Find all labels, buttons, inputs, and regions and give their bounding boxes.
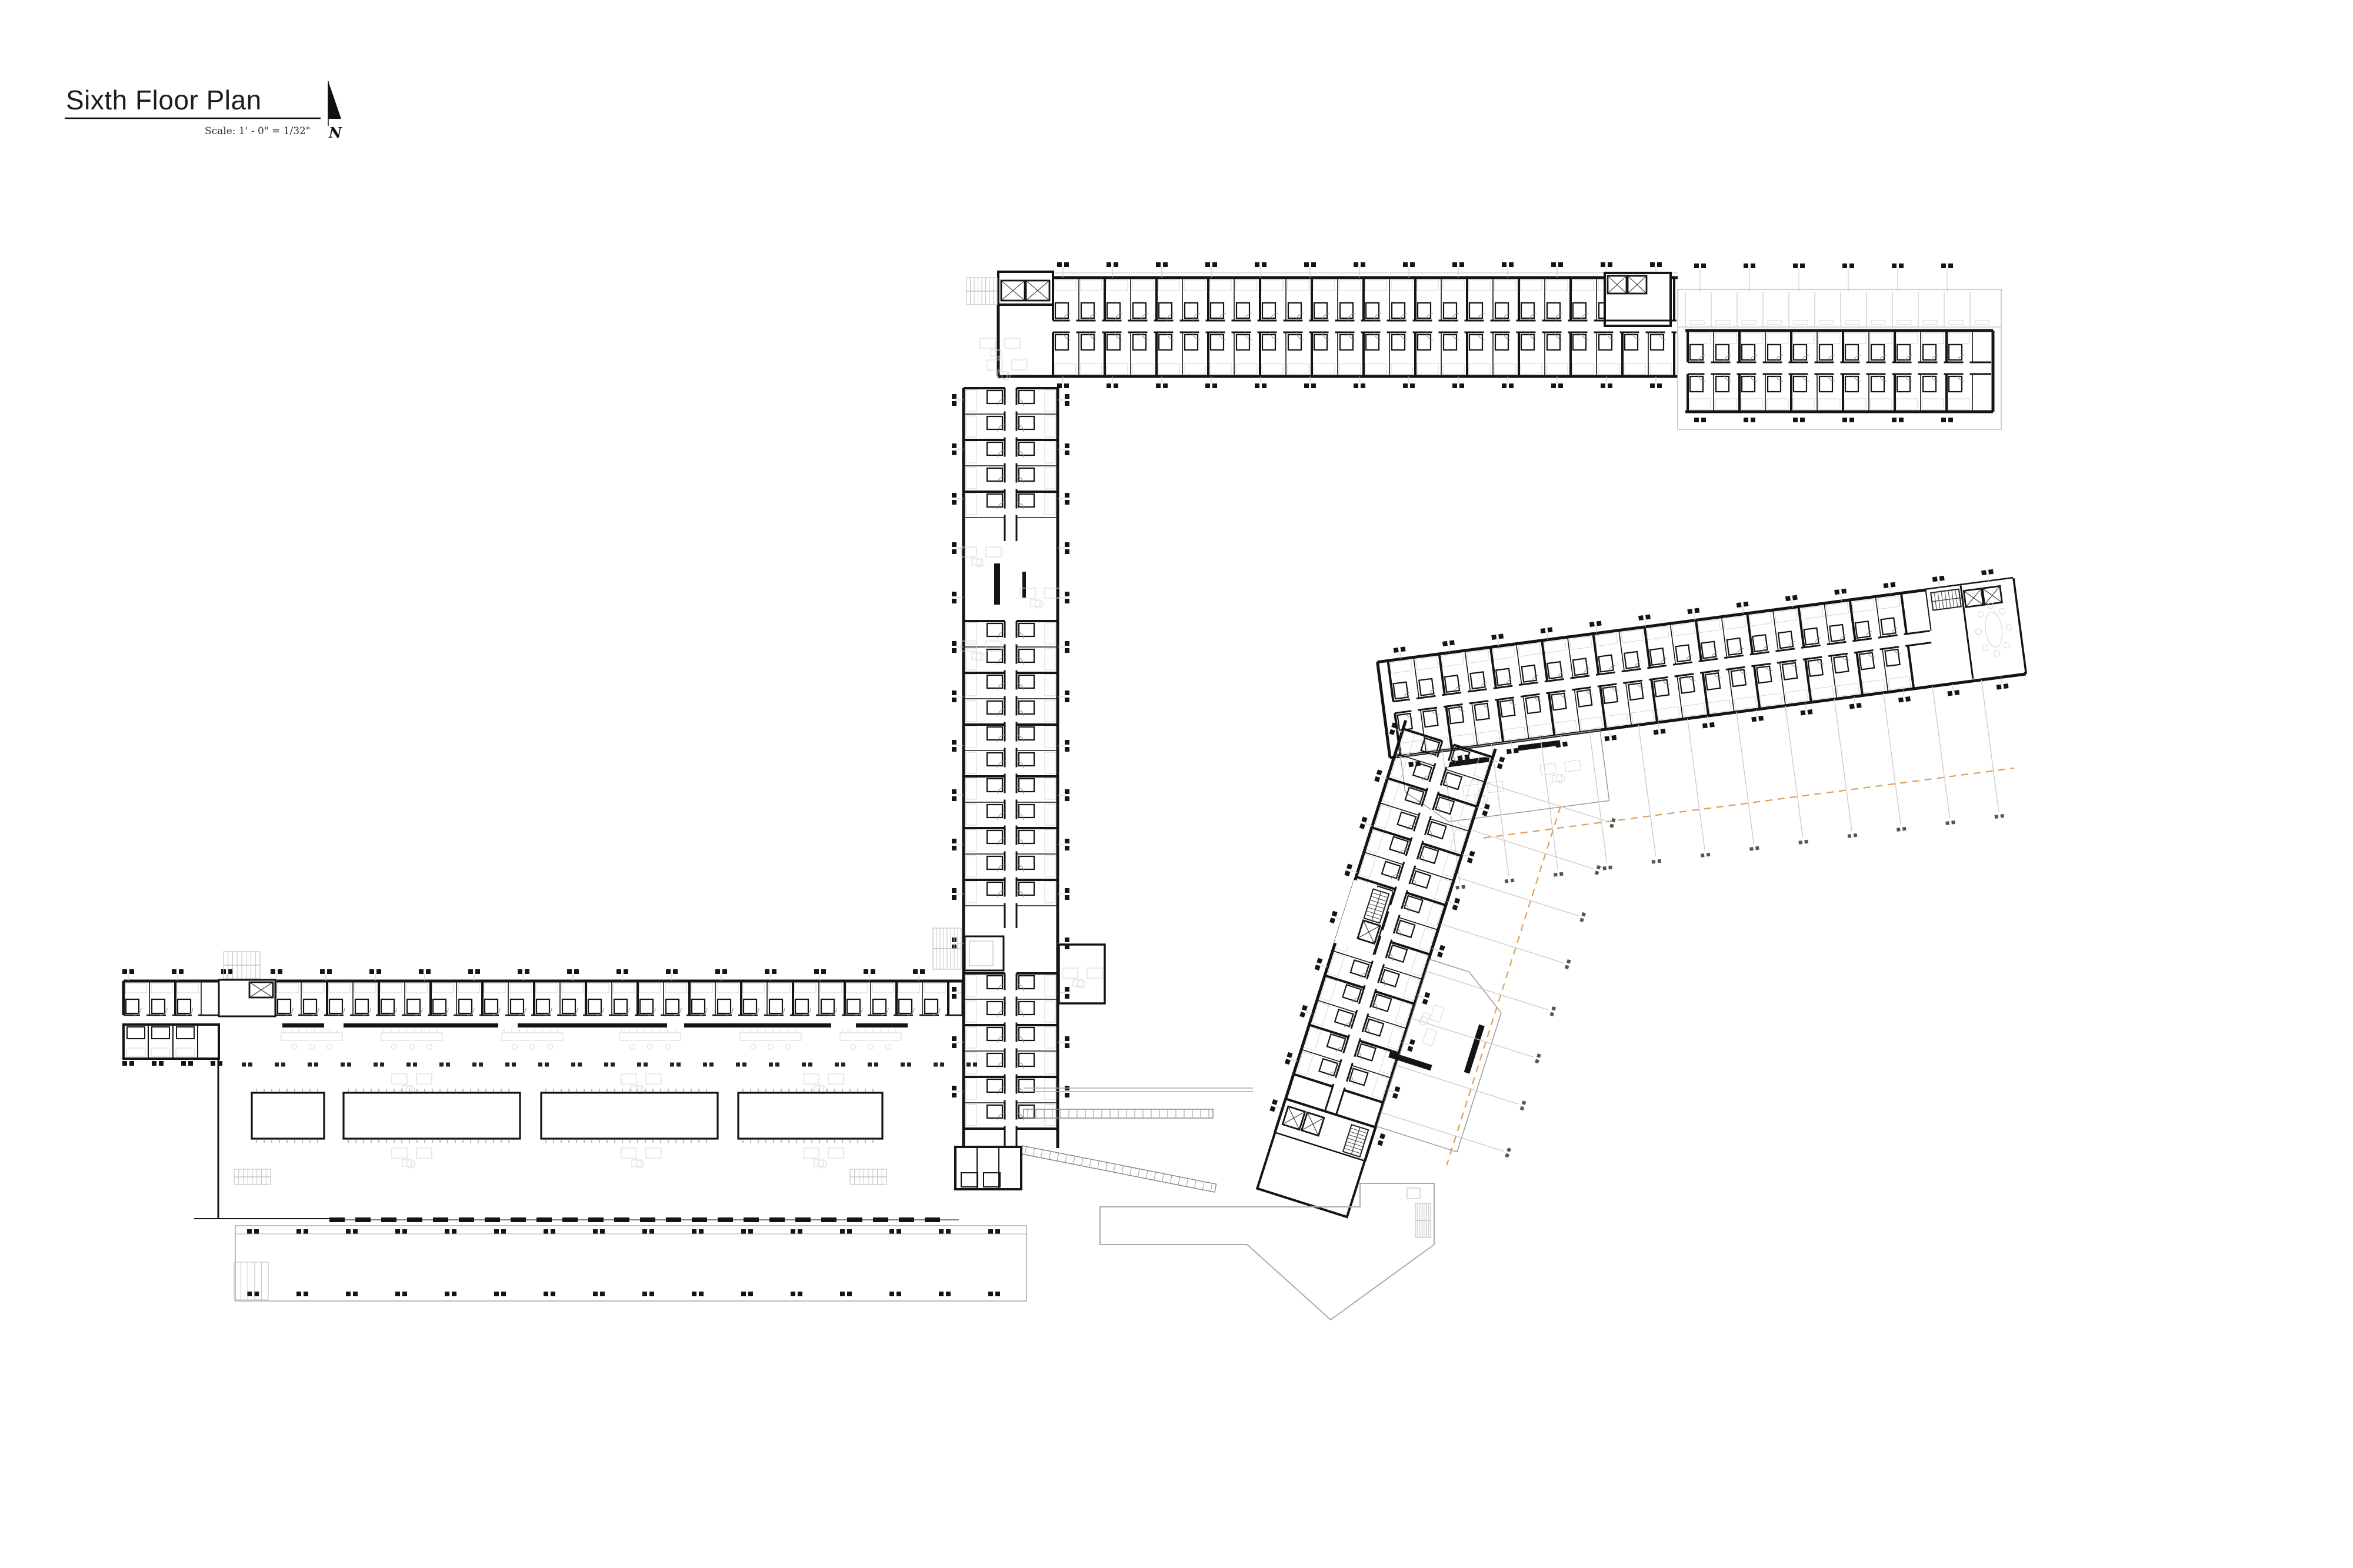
wing-leftdiag	[1246, 717, 1625, 1258]
floor-plan-drawing: Sixth Floor Plan Scale: 1' - 0" = 1/32" …	[0, 0, 2353, 1568]
terrace-middle	[1100, 1183, 1434, 1320]
scale-label: Scale: 1' - 0" = 1/32"	[205, 125, 311, 137]
wing-vertical	[952, 388, 1069, 1148]
title-block: Sixth Floor Plan Scale: 1' - 0" = 1/32" …	[65, 81, 342, 141]
plan-geometry	[122, 262, 2044, 1320]
topright-ghost-band	[1678, 268, 2001, 429]
core-rightdiag-end	[1926, 579, 2025, 683]
bridges	[1021, 1088, 1253, 1192]
page-title: Sixth Floor Plan	[66, 85, 262, 115]
north-arrow-icon	[328, 81, 341, 119]
north-label: N	[328, 124, 342, 141]
annex-leftdiag	[1367, 956, 1510, 1152]
core-junction	[1605, 273, 1671, 326]
core-vertical-lower	[933, 928, 1004, 970]
column-rows	[122, 263, 1953, 1296]
wing-topright	[1685, 331, 1993, 412]
core-leftdiag-tip	[1257, 1099, 1375, 1217]
core-leftdiag-mid	[1334, 880, 1394, 955]
wing-rightdiag	[1376, 567, 2044, 896]
wing-top	[998, 262, 1678, 388]
core-northwest	[966, 272, 1053, 305]
banquet-hall	[124, 1023, 977, 1222]
floor-plan-page: Sixth Floor Plan Scale: 1' - 0" = 1/32" …	[0, 0, 2353, 1568]
ramp	[1021, 1146, 1216, 1192]
terrace-southwest	[234, 1226, 1026, 1301]
core-bottomleft-core	[219, 952, 275, 1016]
